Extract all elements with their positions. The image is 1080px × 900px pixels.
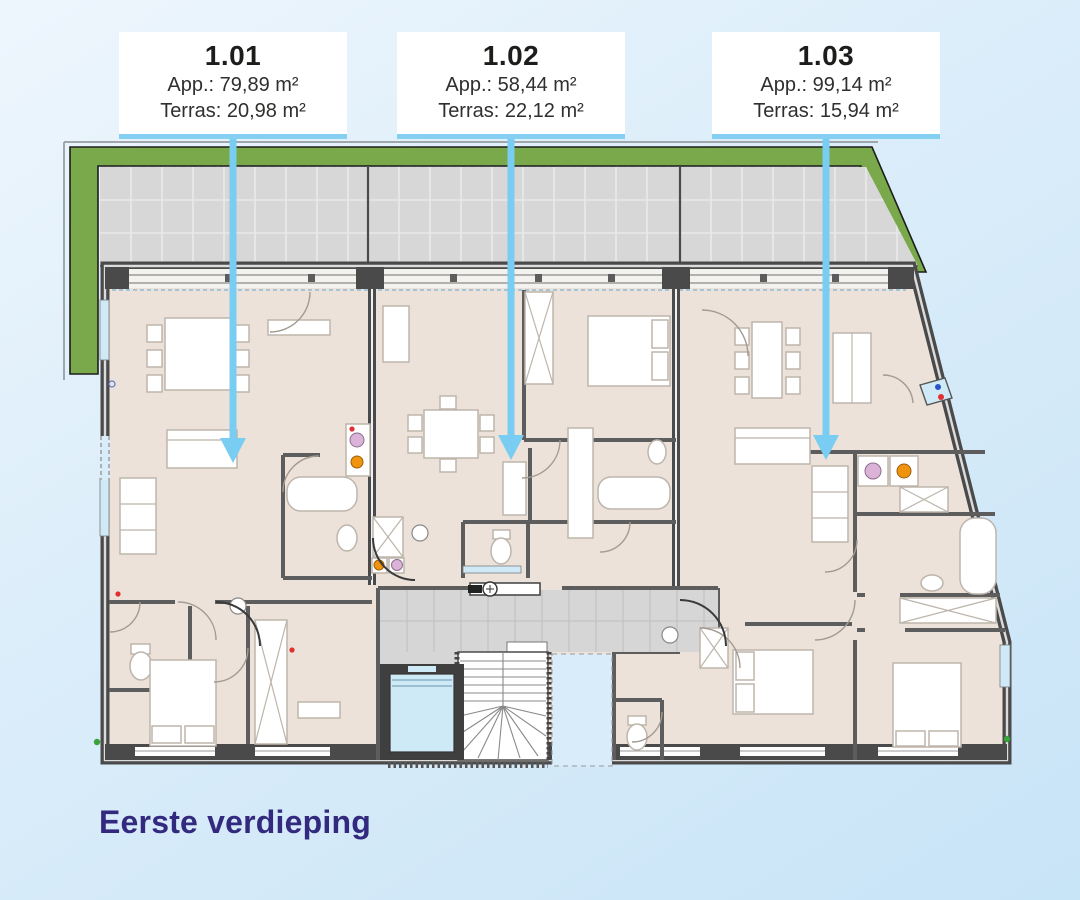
apartment-area: App.: 58,44 m² <box>397 72 625 98</box>
void-area <box>552 654 612 766</box>
elevator <box>380 664 464 760</box>
apartment-card-1-03[interactable]: 1.03 App.: 99,14 m² Terras: 15,94 m² <box>712 32 940 139</box>
apartment-area: App.: 79,89 m² <box>119 72 347 98</box>
apartment-terrace-area: Terras: 22,12 m² <box>397 98 625 124</box>
apartment-number: 1.03 <box>712 40 940 72</box>
apartment-number: 1.02 <box>397 40 625 72</box>
apartment-terrace-area: Terras: 15,94 m² <box>712 98 940 124</box>
apartment-terrace-area: Terras: 20,98 m² <box>119 98 347 124</box>
floor-title: Eerste verdieping <box>99 804 371 841</box>
apartment-card-1-01[interactable]: 1.01 App.: 79,89 m² Terras: 20,98 m² <box>119 32 347 139</box>
apartment-area: App.: 99,14 m² <box>712 72 940 98</box>
floorplan-page: 1.01 App.: 79,89 m² Terras: 20,98 m² 1.0… <box>0 0 1080 900</box>
apartment-number: 1.01 <box>119 40 347 72</box>
apartment-card-1-02[interactable]: 1.02 App.: 58,44 m² Terras: 22,12 m² <box>397 32 625 139</box>
